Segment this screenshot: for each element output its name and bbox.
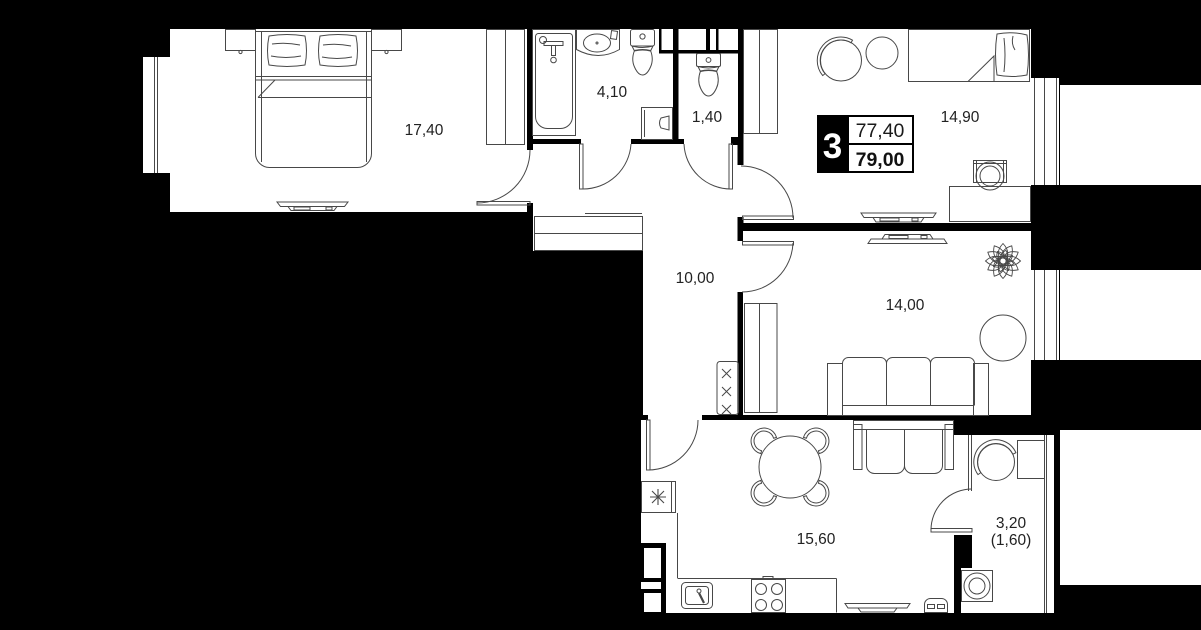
svg-text:10,00: 10,00: [676, 270, 715, 287]
svg-text:17,40: 17,40: [405, 122, 444, 139]
svg-text:1,40: 1,40: [692, 109, 723, 126]
svg-text:3: 3: [823, 127, 842, 166]
svg-text:3,20: 3,20: [996, 515, 1027, 532]
svg-text:4,10: 4,10: [597, 84, 628, 101]
svg-text:14,00: 14,00: [886, 297, 925, 314]
svg-text:15,60: 15,60: [797, 531, 836, 548]
svg-text:79,00: 79,00: [856, 149, 905, 171]
svg-text:77,40: 77,40: [856, 120, 905, 142]
svg-text:14,90: 14,90: [941, 109, 980, 126]
svg-text:(1,60): (1,60): [991, 532, 1032, 549]
